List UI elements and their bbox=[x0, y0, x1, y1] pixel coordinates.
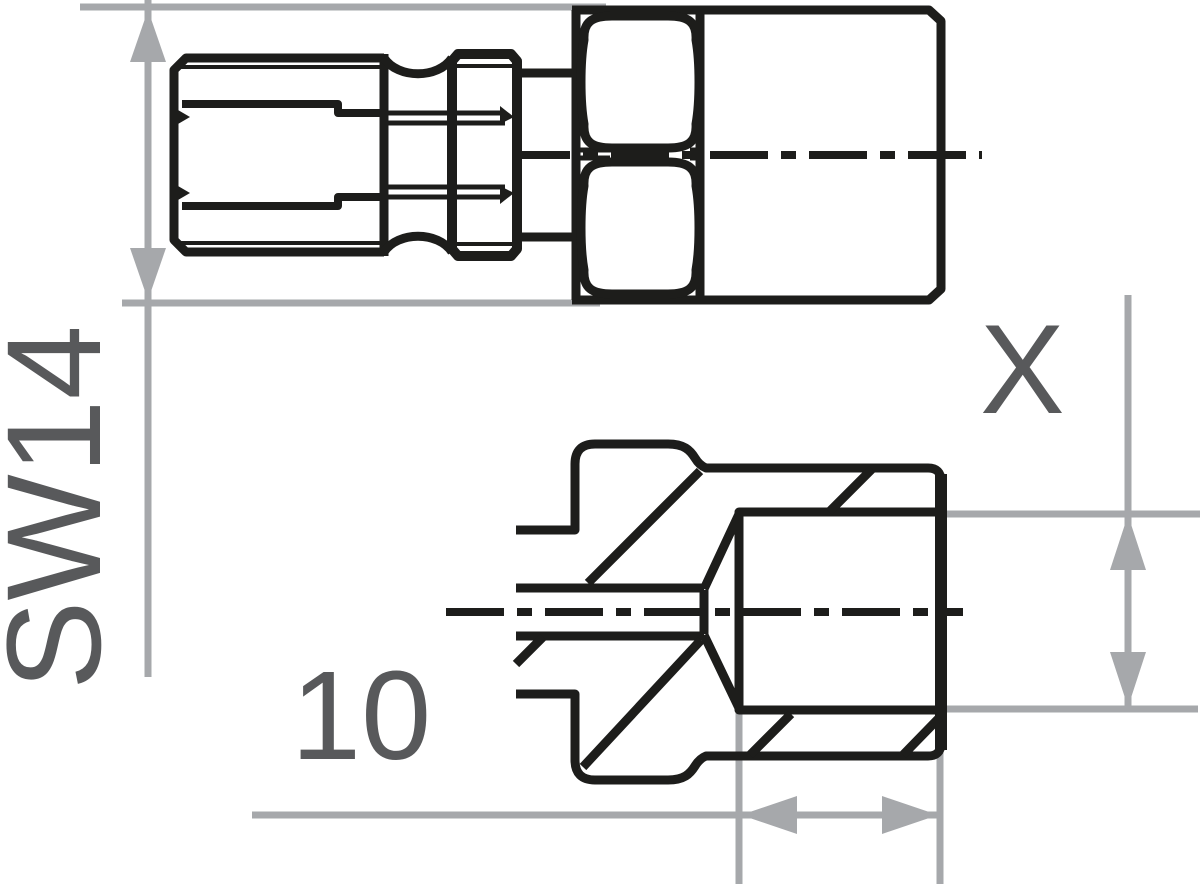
collar-outline bbox=[452, 54, 517, 256]
technical-drawing-page: SW14 X 10 bbox=[0, 0, 1200, 889]
arrow-up-icon bbox=[1110, 515, 1146, 570]
arrow-down-icon bbox=[130, 248, 166, 300]
notch-icon bbox=[500, 186, 514, 204]
hexnut-upper-flat bbox=[581, 16, 699, 148]
fitting-drawing: SW14 X 10 bbox=[0, 0, 1200, 889]
waist-bottom-curve bbox=[384, 236, 452, 252]
notch-icon bbox=[178, 110, 190, 124]
notch-icon bbox=[500, 106, 514, 124]
arrow-down-icon bbox=[1110, 652, 1146, 707]
arrow-up-icon bbox=[130, 10, 166, 62]
collar-inner-edges bbox=[455, 66, 514, 244]
section-view bbox=[446, 444, 963, 780]
socket-inner-edges bbox=[180, 67, 384, 243]
waist-top-curve bbox=[384, 58, 452, 74]
ten-label: 10 bbox=[291, 645, 431, 786]
sw14-label: SW14 bbox=[0, 325, 129, 690]
hexnut-lower-flat bbox=[581, 162, 699, 294]
arrow-right-icon bbox=[882, 796, 938, 834]
socket-outline bbox=[174, 58, 384, 252]
x-label: X bbox=[980, 298, 1065, 440]
socket-bore-lines bbox=[182, 104, 386, 206]
dimension-x: X bbox=[944, 295, 1200, 709]
dimension-10: 10 bbox=[252, 645, 940, 884]
nipple-lines bbox=[386, 113, 505, 197]
notch-icon bbox=[178, 186, 190, 200]
side-view bbox=[174, 10, 982, 300]
arrow-left-icon bbox=[741, 796, 797, 834]
sw14-dimension-lines bbox=[80, 0, 606, 677]
